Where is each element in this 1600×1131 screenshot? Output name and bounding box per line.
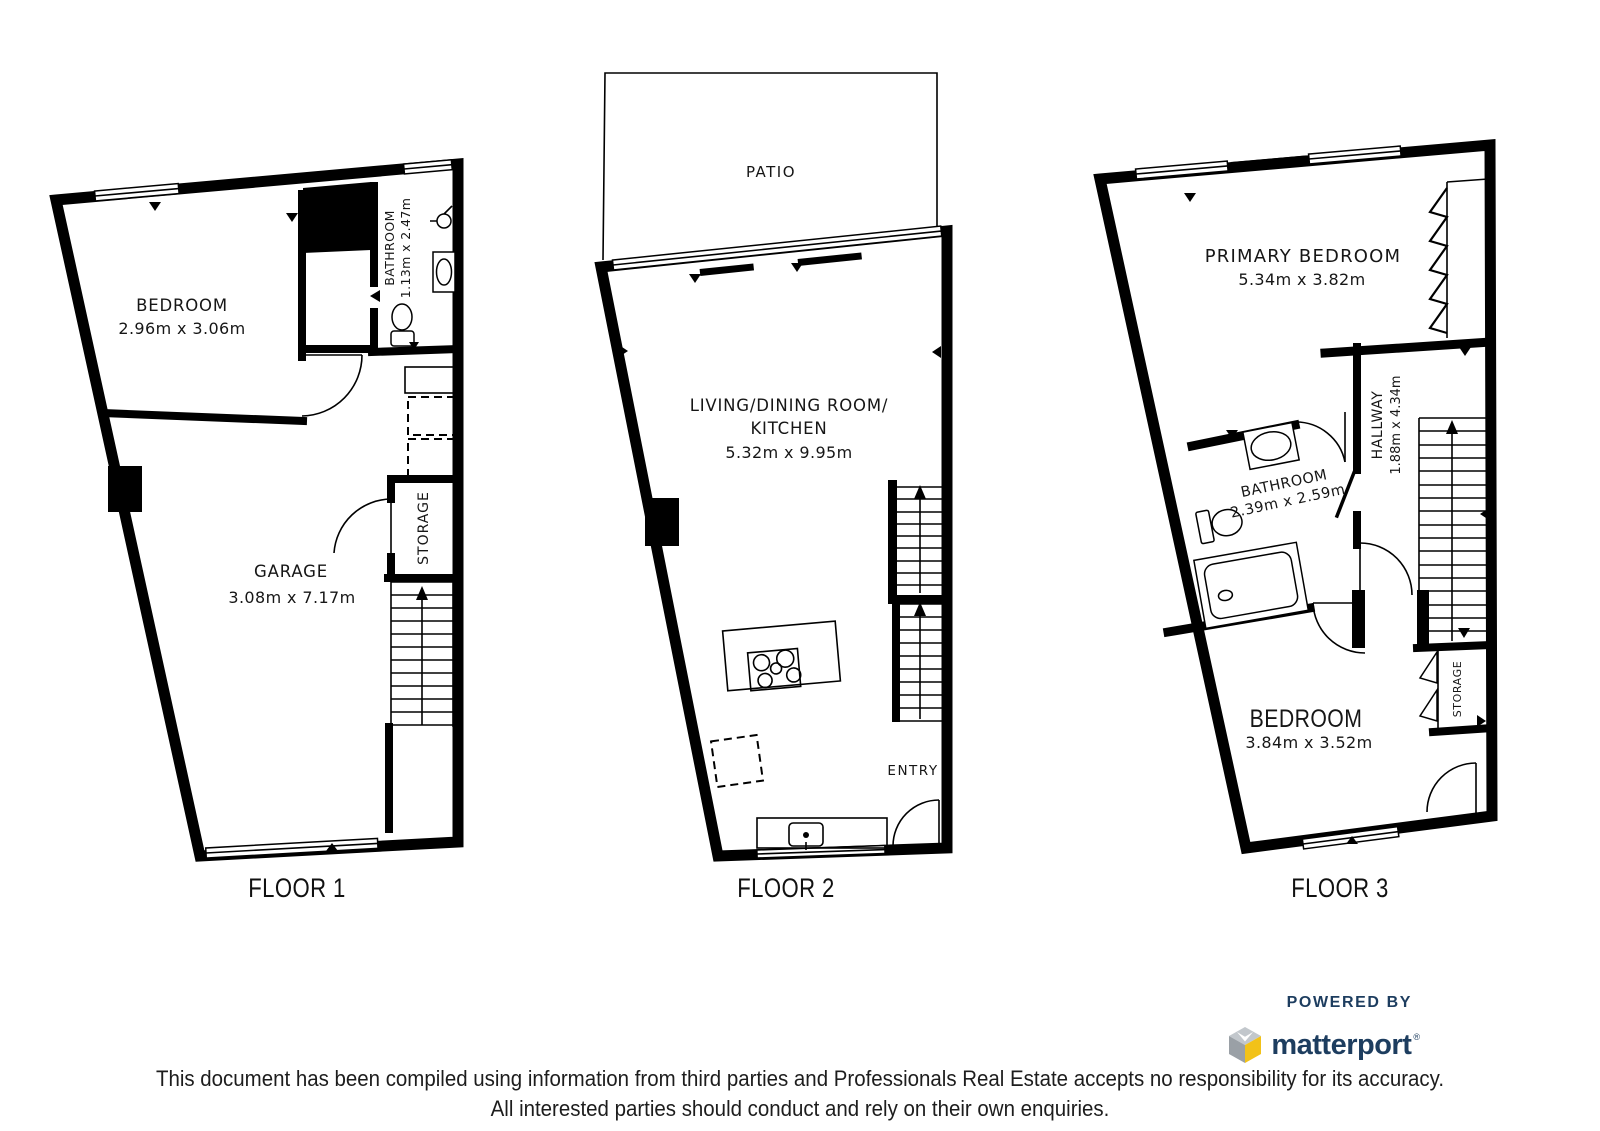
registered-mark: ® (1413, 1032, 1420, 1042)
hall-wall-nub (1352, 590, 1365, 648)
primary-bedroom-label: PRIMARY BEDROOM (1205, 246, 1402, 267)
disclaimer-line1: This document has been compiled using in… (56, 1066, 1544, 1092)
floor1-title: FLOOR 1 (248, 874, 346, 904)
patio-label: PATIO (746, 163, 796, 181)
toilet-icon (391, 304, 414, 346)
wall-pillar (645, 498, 679, 546)
bedroom-label: BEDROOM (136, 296, 228, 315)
faucet-icon (803, 832, 809, 838)
stair-divider (888, 595, 947, 604)
bathroom-label: BATHROOM (382, 210, 397, 286)
bedroom-dims: 3.84m x 3.52m (1245, 733, 1372, 752)
matterport-cube-icon (1228, 1026, 1262, 1064)
bedroom-label: BEDROOM (1250, 704, 1363, 732)
storage-label: STORAGE (1451, 661, 1464, 718)
storage-label: STORAGE (416, 491, 432, 565)
bedroom-dims: 2.96m x 3.06m (118, 319, 245, 338)
powered-by-label: POWERED BY (1287, 994, 1412, 1012)
understair-wall (385, 723, 393, 833)
entry-label: ENTRY (887, 763, 938, 779)
matterport-wordmark: matterport (1271, 1026, 1411, 1064)
living-label-line1: LIVING/DINING ROOM/ (690, 396, 889, 415)
living-dims: 5.32m x 9.95m (725, 443, 852, 462)
primary-bedroom-dims: 5.34m x 3.82m (1238, 270, 1365, 289)
living-label-line2: KITCHEN (750, 419, 827, 438)
garage-label: GARAGE (254, 562, 328, 581)
bathroom-dims: 1.13m x 2.47m (398, 198, 413, 299)
hallway-dims: 1.88m x 4.34m (1389, 375, 1404, 474)
floor3-title: FLOOR 3 (1291, 874, 1389, 904)
garage-dims: 3.08m x 7.17m (228, 588, 355, 607)
matterport-logo: matterport ® (1228, 1026, 1420, 1064)
floorplan-drawing: BEDROOM 2.96m x 3.06m BATHROOM 1.13m x 2… (0, 0, 1600, 1131)
floorplan-document: BEDROOM 2.96m x 3.06m BATHROOM 1.13m x 2… (0, 0, 1600, 1131)
void-fill (303, 182, 371, 253)
hallway-label: HALLWAY (1370, 391, 1386, 460)
floor2-title: FLOOR 2 (737, 874, 835, 904)
sink-icon (433, 252, 455, 292)
wall-pillar (108, 466, 142, 512)
disclaimer-line2: All interested parties should conduct an… (56, 1096, 1544, 1122)
